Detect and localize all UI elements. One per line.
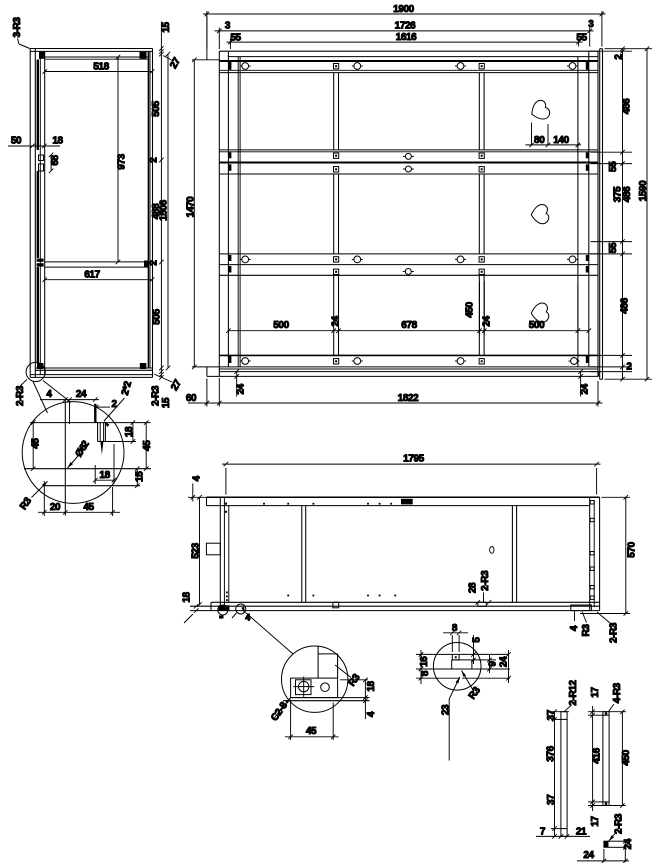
svg-text:505: 505: [151, 308, 162, 324]
svg-text:55: 55: [230, 33, 241, 44]
svg-text:1590: 1590: [638, 180, 649, 201]
svg-text:505: 505: [151, 100, 162, 116]
svg-text:15: 15: [134, 471, 145, 482]
svg-text:2-R3: 2-R3: [608, 622, 619, 643]
svg-text:2: 2: [614, 54, 625, 60]
svg-text:4: 4: [366, 711, 377, 717]
svg-text:45: 45: [142, 440, 153, 451]
svg-text:45: 45: [306, 726, 317, 737]
svg-text:2: 2: [149, 260, 160, 266]
svg-text:2-R12: 2-R12: [568, 680, 579, 706]
svg-text:2: 2: [626, 362, 632, 373]
svg-text:1616: 1616: [396, 32, 417, 43]
svg-text:37: 37: [546, 709, 557, 720]
svg-text:3-R3: 3-R3: [12, 17, 23, 38]
svg-text:55: 55: [608, 161, 619, 172]
svg-text:518: 518: [93, 61, 109, 72]
svg-text:20: 20: [50, 502, 61, 513]
svg-text:45: 45: [31, 438, 42, 449]
svg-text:486: 486: [622, 186, 633, 202]
svg-text:8: 8: [420, 670, 431, 676]
svg-text:7: 7: [540, 827, 546, 838]
svg-text:23: 23: [441, 704, 452, 715]
svg-text:27: 27: [169, 378, 184, 393]
svg-text:678: 678: [401, 320, 417, 331]
svg-text:1900: 1900: [393, 4, 414, 15]
svg-text:9: 9: [488, 661, 499, 667]
svg-text:68: 68: [50, 155, 61, 166]
svg-text:2-R3: 2-R3: [613, 813, 624, 834]
svg-text:1506: 1506: [158, 199, 169, 220]
svg-text:24: 24: [580, 383, 591, 394]
svg-text:18: 18: [181, 592, 192, 603]
svg-text:500: 500: [273, 320, 289, 331]
svg-text:50: 50: [11, 136, 22, 147]
svg-text:28: 28: [467, 582, 478, 593]
svg-text:376: 376: [546, 745, 557, 761]
svg-text:4-R3: 4-R3: [612, 682, 623, 703]
svg-text:R3: R3: [18, 495, 34, 512]
svg-text:3: 3: [225, 21, 231, 32]
svg-text:24: 24: [331, 316, 342, 327]
svg-text:1726: 1726: [395, 21, 416, 32]
svg-text:140: 140: [553, 135, 569, 146]
svg-text:R3: R3: [347, 672, 363, 689]
svg-text:416: 416: [591, 747, 602, 763]
svg-text:4: 4: [46, 389, 52, 400]
svg-text:24: 24: [583, 850, 594, 861]
svg-text:17: 17: [590, 816, 601, 827]
svg-text:2-R3: 2-R3: [15, 385, 26, 406]
svg-text:45: 45: [83, 502, 94, 513]
svg-text:18: 18: [99, 470, 110, 481]
svg-text:617: 617: [84, 270, 100, 281]
svg-text:450: 450: [621, 749, 632, 765]
svg-text:55: 55: [576, 33, 587, 44]
svg-text:R3: R3: [581, 624, 592, 637]
svg-text:500: 500: [529, 320, 545, 331]
svg-text:2-R3: 2-R3: [480, 570, 491, 591]
svg-text:2: 2: [112, 399, 118, 410]
svg-text:27: 27: [168, 56, 183, 71]
svg-text:4: 4: [191, 475, 202, 481]
svg-text:16: 16: [419, 656, 430, 667]
svg-text:24: 24: [499, 656, 510, 667]
svg-text:24: 24: [482, 316, 493, 327]
svg-text:18: 18: [124, 426, 135, 437]
svg-text:1795: 1795: [403, 454, 424, 465]
svg-text:4: 4: [569, 625, 580, 631]
svg-text:60: 60: [186, 393, 197, 404]
svg-text:8: 8: [452, 623, 458, 634]
svg-text:2: 2: [149, 157, 160, 163]
svg-text:80: 80: [534, 135, 545, 146]
svg-text:15: 15: [161, 397, 172, 408]
svg-text:523: 523: [191, 542, 202, 558]
svg-text:1822: 1822: [398, 393, 419, 404]
svg-text:24: 24: [236, 383, 247, 394]
svg-text:37: 37: [546, 794, 557, 805]
svg-text:486: 486: [621, 98, 632, 114]
svg-text:973: 973: [117, 153, 128, 169]
svg-text:21: 21: [576, 827, 587, 838]
svg-text:18: 18: [366, 681, 377, 692]
svg-text:450: 450: [465, 301, 476, 317]
svg-text:2*2: 2*2: [120, 380, 134, 397]
svg-text:570: 570: [627, 541, 638, 557]
svg-text:18: 18: [52, 136, 63, 147]
svg-text:55: 55: [608, 242, 619, 253]
svg-text:17: 17: [590, 687, 601, 698]
svg-text:1470: 1470: [185, 196, 196, 217]
svg-text:15: 15: [161, 22, 172, 33]
svg-text:486: 486: [620, 297, 631, 313]
svg-text:24: 24: [76, 389, 87, 400]
svg-text:5: 5: [472, 637, 483, 643]
svg-text:3: 3: [588, 19, 594, 30]
